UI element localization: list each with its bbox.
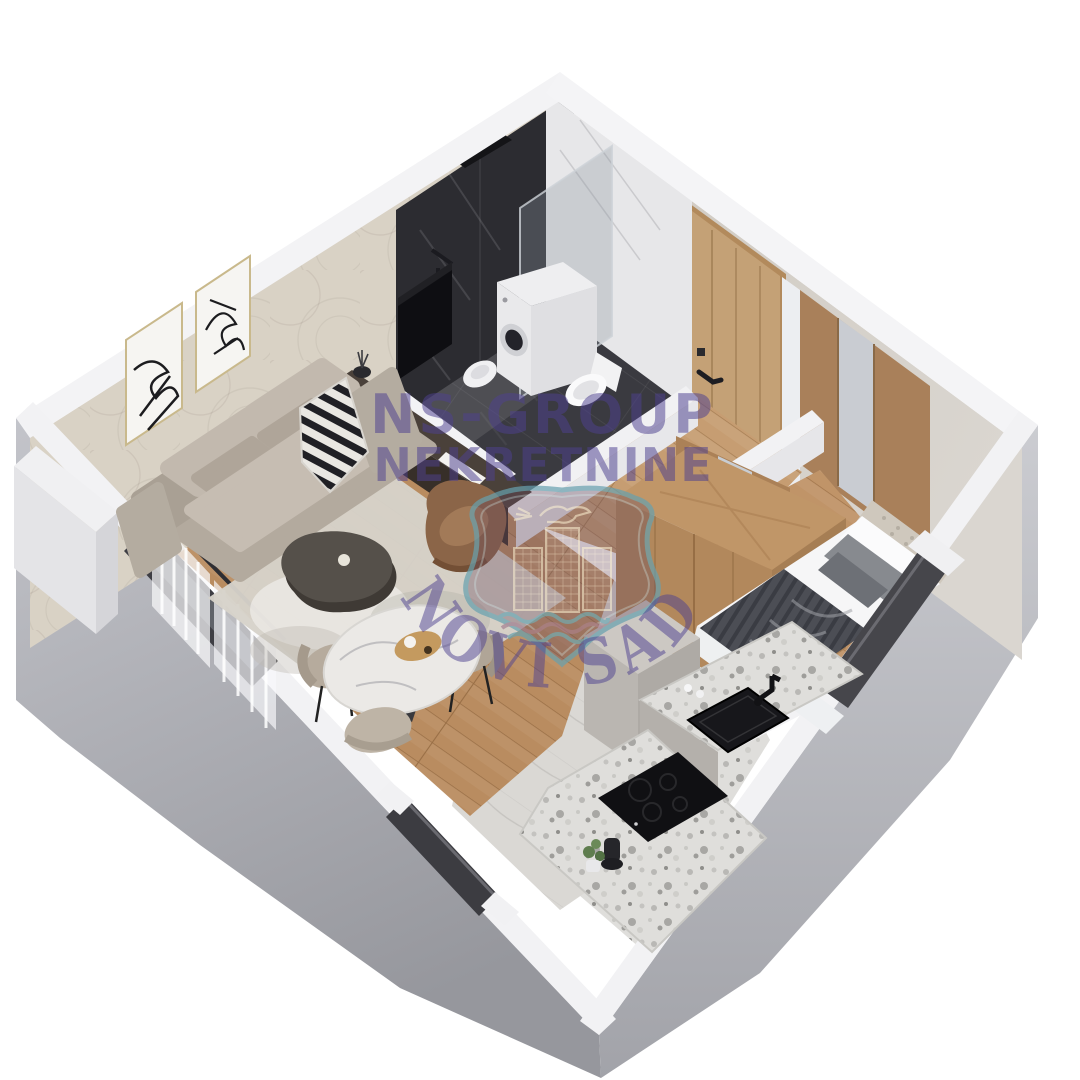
candle	[338, 554, 350, 566]
washing-machine	[495, 262, 597, 396]
watermark-brand-line1: NS-GROUP	[370, 383, 716, 446]
watermark-brand-line2: NEKRETNINE	[373, 438, 712, 492]
sofa-arm-left	[122, 488, 176, 572]
candle	[696, 690, 704, 698]
floorplan-render: NS-GROUP NEKRETNINE NOVI SAD	[0, 0, 1080, 1080]
candle	[684, 684, 692, 692]
floorplan-svg: NS-GROUP NEKRETNINE NOVI SAD	[0, 0, 1080, 1080]
door-lock	[697, 348, 705, 356]
